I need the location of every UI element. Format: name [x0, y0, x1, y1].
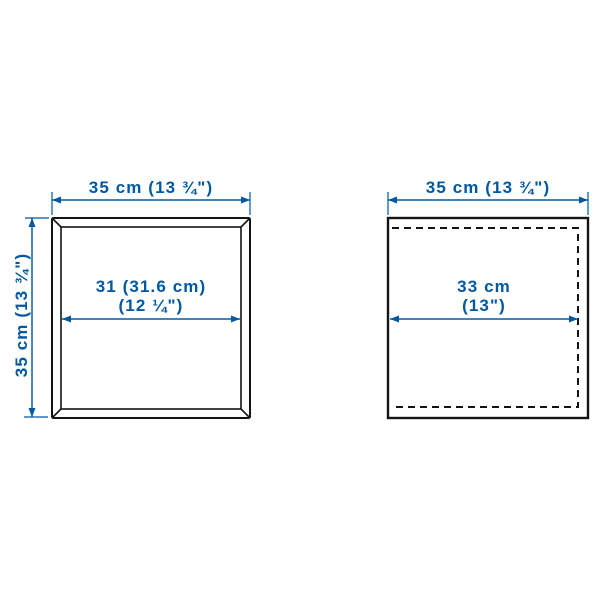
miter-top-right — [241, 219, 249, 227]
left-top-width-label: 35 cm (13 ¾") — [89, 178, 213, 197]
dashed-interior-shape — [388, 218, 588, 418]
left-inner-width-label-line2: (12 ¼") — [119, 296, 184, 315]
miter-bottom-left — [53, 409, 61, 417]
left-view-side-dimension: 35 cm (13 ¾") — [12, 218, 49, 417]
panel-inner-edge — [61, 227, 241, 409]
dimension-diagram: 35 cm (13 ¾") 35 cm (13 ¾") 31 (31.6 cm)… — [0, 0, 600, 600]
interior-dashed-boundary — [392, 228, 578, 407]
right-inner-width-label-line1: 33 cm — [457, 277, 511, 296]
right-top-width-label: 35 cm (13 ¾") — [426, 178, 550, 197]
framed-panel-shape — [52, 218, 250, 418]
square-outer-edge — [388, 218, 588, 418]
miter-bottom-right — [241, 409, 249, 417]
right-view: 35 cm (13 ¾") 33 cm (13") — [388, 178, 588, 418]
miter-top-left — [53, 219, 61, 227]
left-side-height-label: 35 cm (13 ¾") — [12, 253, 31, 377]
right-view-top-dimension: 35 cm (13 ¾") — [388, 178, 588, 215]
right-view-inner-dimension: 33 cm (13") — [390, 277, 578, 319]
left-view-inner-dimension: 31 (31.6 cm) (12 ¼") — [62, 277, 240, 319]
right-inner-width-label-line2: (13") — [462, 296, 506, 315]
panel-outer-edge — [52, 218, 250, 418]
left-inner-width-label-line1: 31 (31.6 cm) — [96, 277, 207, 296]
left-view: 35 cm (13 ¾") 35 cm (13 ¾") 31 (31.6 cm)… — [12, 178, 250, 418]
dimension-diagram-canvas: 35 cm (13 ¾") 35 cm (13 ¾") 31 (31.6 cm)… — [0, 0, 600, 600]
left-view-top-dimension: 35 cm (13 ¾") — [52, 178, 250, 215]
